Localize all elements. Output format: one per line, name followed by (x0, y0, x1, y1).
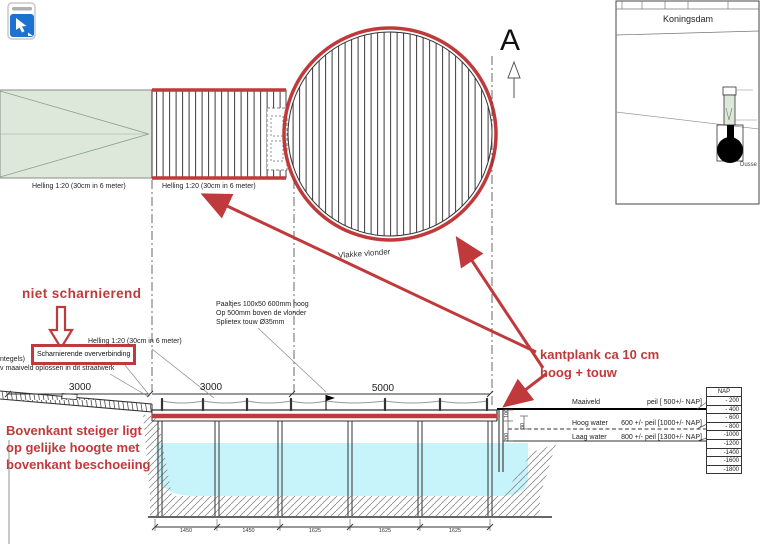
window-bar-icon (12, 7, 32, 11)
dim-bottom-4: 1625 (350, 528, 420, 534)
water-area (156, 443, 528, 496)
left-edge-note-2: v maaiveld oplossen in dit straatwerk (0, 365, 114, 372)
bovenkant-note-1: Bovenkant steiger ligt (6, 423, 142, 438)
dim-bottom-1: 1450 (155, 528, 217, 534)
inset-partial-label: Dusse (740, 162, 757, 168)
ramp-plan (152, 90, 286, 178)
nap-scale-table: NAP - 200 - 400 - 600 - 800 -1000 -1200 … (706, 388, 742, 474)
level-name-maaiveld: Maaiveld (572, 399, 600, 406)
bovenkant-note-3: bovenkant beschoeiing (6, 457, 150, 472)
rope-line (162, 401, 487, 403)
level-value-laagwater: 800 +/- peil [1300+/- NAP] (600, 434, 702, 441)
dim-3000-mid: 3000 (176, 382, 246, 393)
scharnierende-box: Scharnierende oververbinding (31, 344, 136, 365)
dim-side-200: 200 (504, 433, 510, 442)
scharnierende-box-label: Scharnierende oververbinding (31, 344, 136, 365)
paaltjes-note-3: Splietex touw Ø35mm (216, 319, 284, 326)
inset-map (616, 1, 759, 204)
nap-value: -1800 (706, 465, 742, 475)
dim-bottom-2: 1450 (217, 528, 280, 534)
niet-scharnierend-note: niet scharnierend (22, 286, 141, 301)
helling-label-plan-left: Helling 1:20 (30cm in 6 meter) (32, 183, 126, 190)
dim-3000-left: 3000 (45, 382, 115, 393)
cursor-tool-button[interactable] (8, 3, 35, 39)
bovenkant-note-2: op gelijke hoogte met (6, 440, 140, 455)
left-edge-note-1: ntegels) (0, 356, 25, 363)
helling-label-elevation: Helling 1:20 (30cm in 6 meter) (88, 338, 182, 345)
kantplank-note-1: kantplank ca 10 cm (540, 347, 659, 362)
dim-bottom-3: 1625 (280, 528, 350, 534)
section-arrow (508, 62, 520, 98)
vlonder-circle (284, 28, 496, 240)
level-flag-marker (326, 395, 335, 410)
green-approach-area (0, 90, 152, 178)
level-value-hoogwater: 600 +/- peil [1000+/- NAP] (600, 420, 702, 427)
dim-side-30: 30 (520, 423, 526, 429)
dim-side-100: 100 (504, 409, 510, 418)
drawing-canvas: Helling 1:20 (30cm in 6 meter) Helling 1… (0, 0, 760, 544)
inset-area-label: Koningsdam (616, 14, 760, 24)
level-value-maaiveld: peil [ 500+/- NAP] (600, 399, 702, 406)
section-marker-label: A (500, 24, 520, 58)
helling-label-plan-right: Helling 1:20 (30cm in 6 meter) (162, 183, 256, 190)
paaltjes-note-2: Op 500mm boven de vlonder (216, 310, 306, 317)
paaltjes-posts (162, 399, 487, 410)
red-down-arrow (50, 307, 72, 348)
dim-bottom-5: 1625 (420, 528, 490, 534)
paaltjes-note-1: Paaltjes 100x50 600mm hoog (216, 301, 309, 308)
kantplank-note-2: hoog + touw (540, 365, 617, 380)
dim-5000: 5000 (348, 383, 418, 394)
